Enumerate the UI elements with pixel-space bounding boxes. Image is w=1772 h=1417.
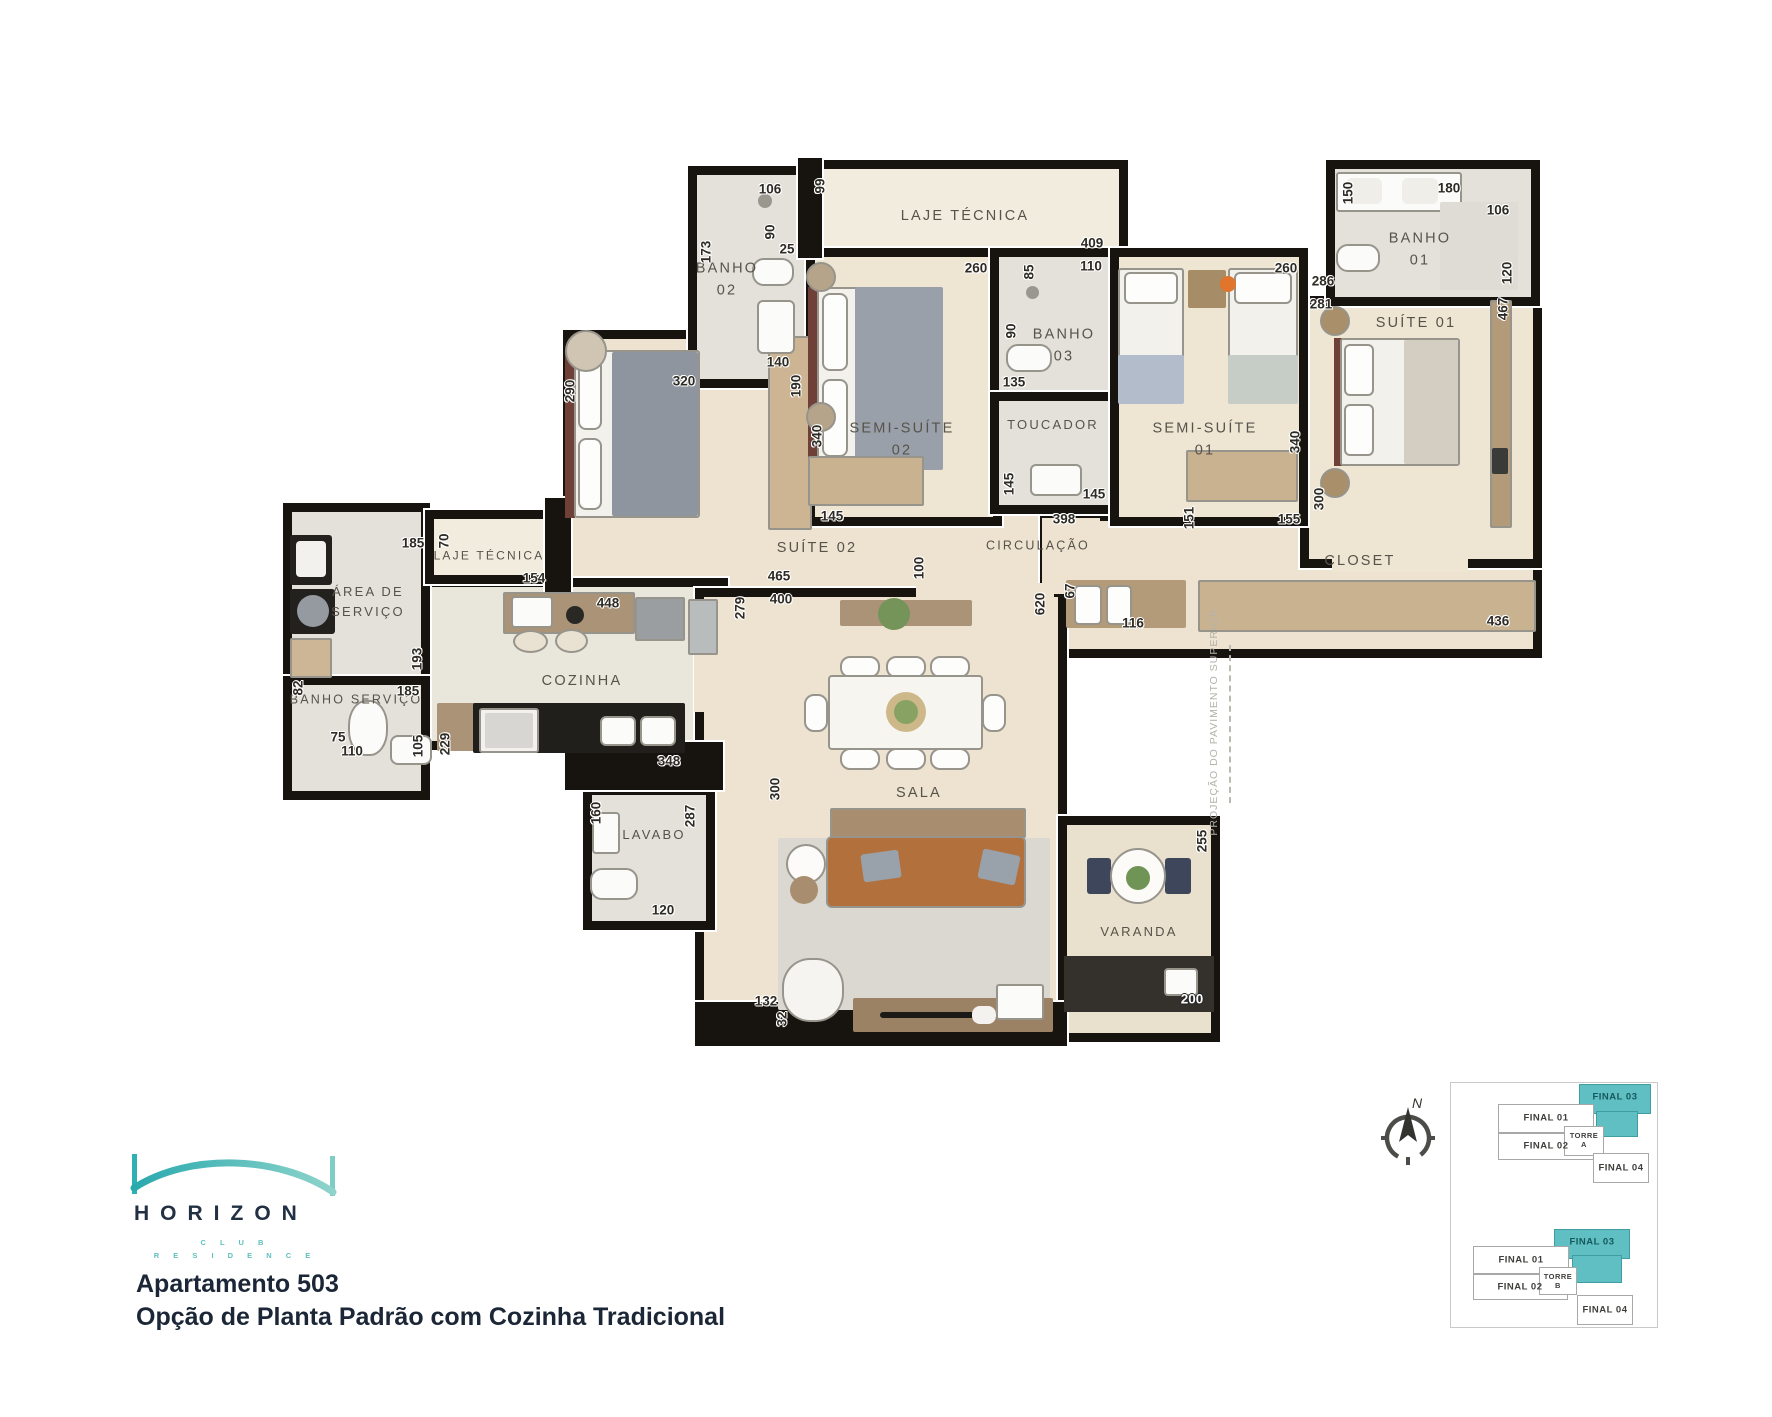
dimension-label: 120 xyxy=(1500,262,1515,285)
ss01-blanket-1 xyxy=(1118,355,1184,404)
horizon-logo-arc-icon xyxy=(120,1146,350,1200)
keyplan-a-torre-label: TORRE A xyxy=(1570,1131,1599,1149)
keyplan-a-final02-label: FINAL 02 xyxy=(1523,1140,1568,1151)
dimension-label: 135 xyxy=(1003,375,1026,390)
dining-chair-bottom-1 xyxy=(840,748,880,770)
banho02-sink xyxy=(757,300,795,354)
dimension-label: 85 xyxy=(1022,264,1037,279)
ss01-pillow-1 xyxy=(1124,272,1178,304)
dimension-label: 287 xyxy=(683,805,698,828)
title-block: Apartamento 503 Opção de Planta Padrão c… xyxy=(136,1268,725,1334)
room-label: SEMI-SUÍTE 02 xyxy=(850,418,955,463)
dimension-label: 200 xyxy=(1181,992,1204,1007)
closet-wardrobe xyxy=(1198,580,1536,632)
dimension-label: 448 xyxy=(597,596,620,611)
dimension-label: 116 xyxy=(1122,616,1144,631)
cozinha-fridge xyxy=(635,597,685,641)
plan-option-subtitle: Opção de Planta Padrão com Cozinha Tradi… xyxy=(136,1301,725,1334)
dining-chair-right xyxy=(982,694,1006,732)
varanda-chair-left xyxy=(1087,858,1111,894)
dimension-label: 132 xyxy=(755,994,778,1009)
room-label: TOUCADOR xyxy=(1007,415,1099,435)
dining-chair-left xyxy=(804,694,828,732)
keyplan-b-final03-label: FINAL 03 xyxy=(1569,1236,1614,1247)
dimension-label: 75 xyxy=(330,730,345,745)
dimension-label: 260 xyxy=(1275,261,1298,276)
dimension-label: 67 xyxy=(1063,583,1078,598)
room-label: VARANDA xyxy=(1100,922,1177,942)
dimension-label: 145 xyxy=(821,509,844,524)
dimension-label: 110 xyxy=(341,744,363,759)
closet-cushion-1 xyxy=(1074,585,1102,625)
toucador-sink xyxy=(1030,464,1082,496)
dimension-label: 279 xyxy=(733,597,748,620)
dimension-label: 320 xyxy=(673,374,696,389)
dimension-label: 70 xyxy=(437,533,452,548)
areaserv-tank-basin xyxy=(296,541,326,577)
ss01-nightstand xyxy=(1188,270,1226,308)
cozinha-stool-4 xyxy=(640,716,676,746)
room-label: PROJEÇÃO DO PAVIMENTO SUPERIOR xyxy=(1206,608,1222,835)
dimension-label: 150 xyxy=(1341,182,1356,205)
dimension-label: 185 xyxy=(402,536,425,551)
dimension-label: 185 xyxy=(397,684,420,699)
banho03-shower-head xyxy=(1026,286,1039,299)
room-label: CIRCULAÇÃO xyxy=(986,536,1090,555)
dimension-label: 193 xyxy=(410,648,425,671)
ss01-lamp xyxy=(1220,276,1236,292)
dimension-label: 105 xyxy=(411,735,426,758)
sofa-cushion-1 xyxy=(860,849,902,882)
dimension-label: 465 xyxy=(768,569,791,584)
dimension-label: 340 xyxy=(1288,431,1303,454)
ss02-stool-1 xyxy=(806,262,836,292)
dimension-label: 160 xyxy=(589,802,604,825)
areaserv-cabinet xyxy=(290,638,332,678)
dimension-label: 290 xyxy=(563,380,578,403)
dimension-label: 145 xyxy=(1083,487,1106,502)
suite01-tv xyxy=(1492,448,1508,474)
room-label: LAJE TÉCNICA xyxy=(434,547,545,566)
dimension-label: 300 xyxy=(1312,488,1327,511)
room-label: COZINHA xyxy=(542,670,623,692)
dimension-label: 106 xyxy=(759,182,782,197)
dimension-label: 300 xyxy=(768,778,783,801)
cozinha-stool-1 xyxy=(513,630,548,653)
armchair xyxy=(782,958,844,1022)
dimension-label: 154 xyxy=(523,571,546,586)
dimension-label: 398 xyxy=(1053,512,1076,527)
apartment-title: Apartamento 503 xyxy=(136,1268,725,1301)
dimension-label: 400 xyxy=(770,592,793,607)
banho02-toilet xyxy=(752,258,794,286)
ss02-pillow-1 xyxy=(822,293,848,371)
dimension-label: 120 xyxy=(652,903,675,918)
dimension-label: 173 xyxy=(699,241,714,264)
logo-sub-club: C L U B xyxy=(120,1238,350,1247)
room-label: BANHO 01 xyxy=(1389,228,1452,273)
media-deco xyxy=(972,1006,996,1024)
sala-console-plant xyxy=(878,598,910,630)
dimension-label: 25 xyxy=(779,242,794,257)
dimension-label: 409 xyxy=(1081,236,1104,251)
dimension-label: 140 xyxy=(767,355,790,370)
dimension-label: 436 xyxy=(1487,614,1510,629)
dimension-label: 90 xyxy=(1004,323,1019,338)
room-label: SUÍTE 01 xyxy=(1376,312,1456,334)
suite01-pillow-2 xyxy=(1344,404,1374,456)
keyplan-a-final01-label: FINAL 01 xyxy=(1523,1112,1568,1123)
varanda-chair-right xyxy=(1165,858,1191,894)
ss01-blanket-2 xyxy=(1228,355,1298,404)
dimension-label: 190 xyxy=(789,375,804,398)
dimension-label: 255 xyxy=(1195,830,1210,853)
room-label: SALA xyxy=(896,782,942,804)
room-label: BANHO 02 xyxy=(696,258,759,303)
suite02-pillow-2 xyxy=(578,438,602,510)
banho01-basin-2 xyxy=(1402,178,1438,204)
coffee-table-wood xyxy=(790,876,818,904)
dimension-label: 281 xyxy=(1310,297,1333,312)
compass-icon: N xyxy=(1368,1094,1448,1174)
dimension-label: 100 xyxy=(912,557,927,580)
keyplan-b-final02-label: FINAL 02 xyxy=(1497,1281,1542,1292)
dimension-label: 467 xyxy=(1496,298,1511,321)
room-label: SEMI-SUÍTE 01 xyxy=(1153,418,1258,463)
dimension-label: 32 xyxy=(775,1011,790,1026)
banho01-toilet xyxy=(1336,244,1380,272)
keyplan-box: FINAL 03 FINAL 01 FINAL 02 TORRE A FINAL… xyxy=(1450,1082,1658,1328)
cozinha-appliance xyxy=(688,599,718,655)
dimension-label: 151 xyxy=(1182,507,1197,530)
ss01-pillow-2 xyxy=(1234,272,1292,304)
keyplan-a-final04-label: FINAL 04 xyxy=(1598,1162,1643,1173)
dimension-label: 286 xyxy=(1312,274,1335,289)
room-label: BANHO 03 xyxy=(1033,324,1096,369)
logo-sub-residence: R E S I D E N C E xyxy=(120,1251,350,1260)
dimension-label: 340 xyxy=(810,425,825,448)
keyplan-b-final04-label: FINAL 04 xyxy=(1582,1304,1627,1315)
horizon-logo: HORIZON C L U B R E S I D E N C E xyxy=(120,1146,420,1205)
cozinha-stool-2 xyxy=(555,629,588,653)
dimension-label: 90 xyxy=(763,224,778,239)
suite01-bench xyxy=(1490,300,1512,528)
upper-floor-projection-line xyxy=(1229,645,1231,803)
dimension-label: 82 xyxy=(291,680,306,695)
dining-chair-bottom-3 xyxy=(930,748,970,770)
keyplan-b-torre-label: TORRE B xyxy=(1544,1272,1573,1290)
dimension-label: 229 xyxy=(438,733,453,756)
ss02-wardrobe xyxy=(808,456,924,506)
wall-banho02-laje xyxy=(798,158,822,258)
logo-wordmark: HORIZON xyxy=(134,1202,308,1226)
keyplan-b-final03-shape2 xyxy=(1572,1255,1622,1283)
cozinha-sink xyxy=(511,596,553,628)
room-label: CLOSET xyxy=(1324,550,1395,572)
dimension-label: 110 xyxy=(1080,259,1102,274)
media-tv xyxy=(996,984,1044,1020)
keyplan-a-final03-label: FINAL 03 xyxy=(1592,1091,1637,1102)
dimension-label: 155 xyxy=(1278,512,1301,527)
compass-north-letter: N xyxy=(1412,1095,1423,1111)
cozinha-burner xyxy=(566,606,584,624)
room-label: SUÍTE 02 xyxy=(777,537,857,559)
suite02-side-table xyxy=(565,330,607,372)
dimension-label: 106 xyxy=(1487,203,1510,218)
keyplan-b-final01-label: FINAL 01 xyxy=(1498,1254,1543,1265)
varanda-plant xyxy=(1126,866,1150,890)
dining-plant xyxy=(894,700,918,724)
dimension-label: 180 xyxy=(1438,181,1461,196)
dimension-label: 145 xyxy=(1002,473,1017,496)
suite01-blanket xyxy=(1404,340,1458,464)
room-label: ÁREA DE SERVIÇO xyxy=(331,582,405,622)
cozinha-stove-grate xyxy=(485,713,533,748)
dimension-label: 99 xyxy=(813,178,828,193)
dimension-label: 348 xyxy=(658,754,681,769)
suite01-pillow-1 xyxy=(1344,344,1374,396)
cozinha-stool-3 xyxy=(600,716,636,746)
dimension-label: 260 xyxy=(965,261,988,276)
dimension-label: 620 xyxy=(1033,593,1048,616)
lavabo-toilet xyxy=(590,868,638,900)
room-label: LAJE TÉCNICA xyxy=(901,205,1029,227)
room-label: LAVABO xyxy=(622,825,685,845)
sofa-sideboard xyxy=(830,808,1026,838)
north-compass: N xyxy=(1368,1094,1448,1179)
dining-chair-bottom-2 xyxy=(886,748,926,770)
areaserv-washer-door xyxy=(297,595,329,627)
